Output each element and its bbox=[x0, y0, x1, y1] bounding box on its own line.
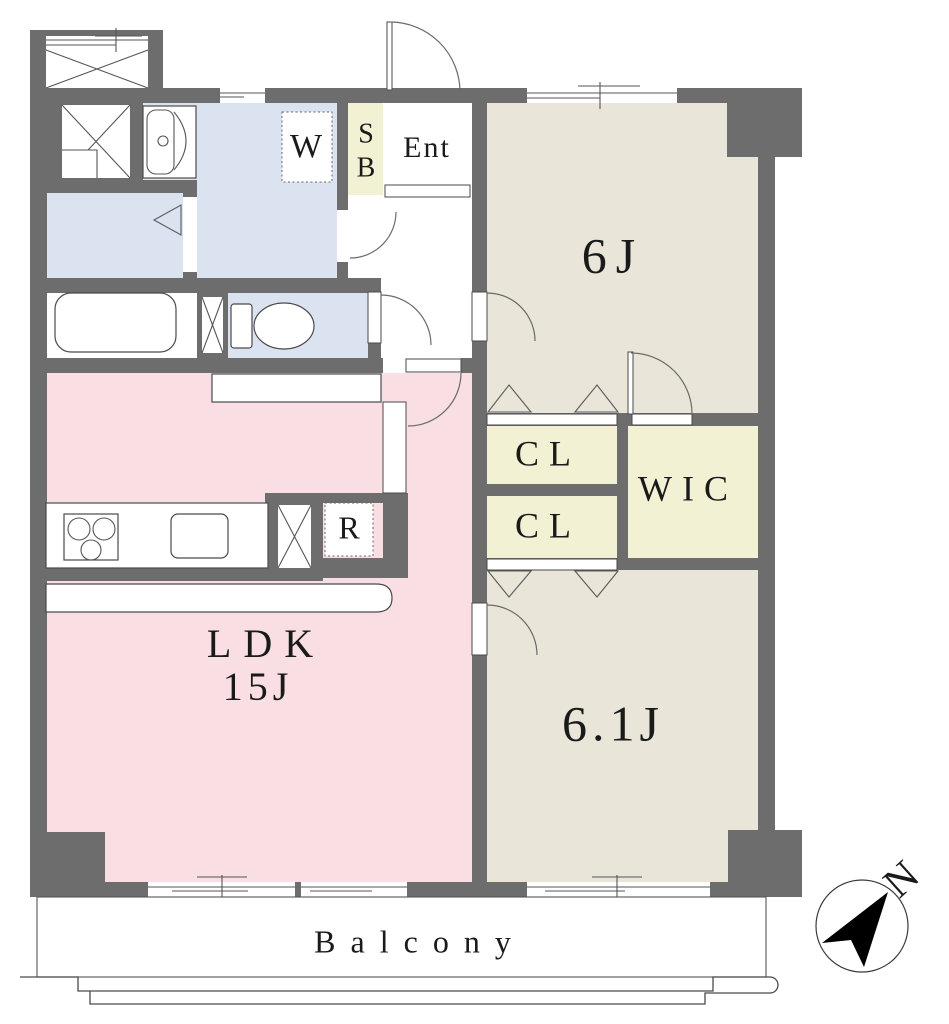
pipe-space-upper bbox=[62, 105, 130, 178]
washer-label: W bbox=[290, 128, 323, 165]
stove-icon bbox=[64, 514, 118, 560]
shoe-box-label-top: S bbox=[358, 118, 374, 149]
entrance-step bbox=[385, 185, 470, 197]
window-ldk-right bbox=[301, 882, 407, 897]
balcony: Balcony bbox=[20, 897, 778, 1004]
door-toilet bbox=[368, 292, 431, 345]
floorplan-drawing: Balcony N LDK 15J 6J 6.1J CL CL WIC Ent … bbox=[0, 0, 949, 1024]
north-arrow-icon bbox=[822, 892, 888, 967]
window-washroom bbox=[220, 88, 265, 103]
pipe-space-kitchen bbox=[278, 505, 311, 568]
closet-upper-label: CL bbox=[515, 433, 581, 473]
bathtub bbox=[55, 293, 176, 352]
counter-bar bbox=[46, 584, 392, 612]
ldk-label: LDK bbox=[207, 621, 325, 666]
washbasin bbox=[143, 106, 196, 178]
shoe-box-label-bottom: B bbox=[357, 152, 376, 183]
wic-label: WIC bbox=[638, 468, 738, 508]
ldk-size-label: 15J bbox=[223, 664, 294, 709]
door-washroom bbox=[350, 212, 396, 258]
wall-cabinet bbox=[212, 374, 381, 402]
pipe-space-toilet bbox=[202, 297, 223, 353]
balcony-label: Balcony bbox=[314, 923, 526, 959]
balcony-railing bbox=[20, 977, 778, 1004]
kitchen-sink bbox=[171, 514, 228, 558]
compass-icon: N bbox=[816, 852, 928, 972]
entrance-door bbox=[387, 22, 460, 92]
toilet bbox=[231, 303, 314, 349]
refrigerator-label: R bbox=[338, 509, 360, 545]
bedroom-south-size-label: 6.1J bbox=[562, 695, 664, 751]
bedroom-north-size-label: 6J bbox=[582, 227, 644, 283]
kitchen-opening bbox=[383, 402, 406, 493]
closet-lower-label: CL bbox=[515, 505, 581, 545]
room-changing bbox=[46, 193, 183, 278]
floorplan: Balcony N LDK 15J 6J 6.1J CL CL WIC Ent … bbox=[0, 0, 949, 1024]
entrance-label: Ent bbox=[403, 131, 451, 164]
elevator-shaft bbox=[46, 28, 148, 88]
